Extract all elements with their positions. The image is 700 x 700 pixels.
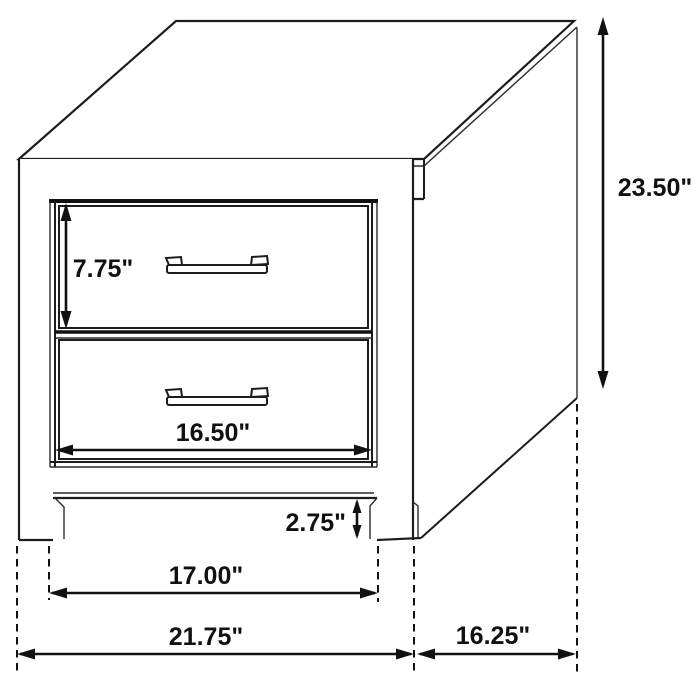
- handle-1-left-foot: [166, 257, 182, 265]
- dim-overall-height: 23.50": [598, 17, 693, 389]
- dim-label-side-depth: 16.25": [456, 622, 530, 650]
- dim-label-base-clearance: 2.75": [285, 509, 346, 537]
- dim-label-inner-leg-span: 17.00": [169, 562, 243, 590]
- handle-1-bar: [167, 265, 267, 273]
- dim-inner-leg-span: 17.00": [49, 562, 378, 599]
- handle-1-right-foot: [251, 256, 268, 265]
- dim-label-overall-width: 21.75": [169, 623, 243, 651]
- dim-overall-width: 21.75": [17, 623, 414, 660]
- handle-2-right-foot: [251, 388, 268, 397]
- arrowhead-right-icon: [558, 649, 576, 660]
- arrowhead-left-icon: [417, 649, 435, 660]
- arrowhead-right-icon: [360, 588, 378, 599]
- dim-label-overall-height: 23.50": [618, 174, 692, 202]
- dim-side-depth: 16.25": [417, 622, 576, 660]
- handle-2-left-foot: [166, 389, 182, 397]
- cabinet-front: [19, 159, 421, 540]
- handle-2-bar: [167, 397, 267, 405]
- dim-label-top-drawer-height: 7.75": [73, 255, 134, 283]
- diagram-canvas: 23.50" 7.75" 16.50" 2.75" 17: [0, 0, 700, 700]
- arrowhead-left-icon: [49, 588, 67, 599]
- dim-label-drawer-width: 16.50": [176, 419, 250, 447]
- arrowhead-right-icon: [396, 649, 414, 660]
- arrowhead-down-icon: [598, 371, 609, 389]
- arrowhead-up-icon: [598, 17, 609, 35]
- arrowhead-left-icon: [17, 649, 35, 660]
- nightstand-dimension-diagram: 23.50" 7.75" 16.50" 2.75" 17: [0, 0, 700, 700]
